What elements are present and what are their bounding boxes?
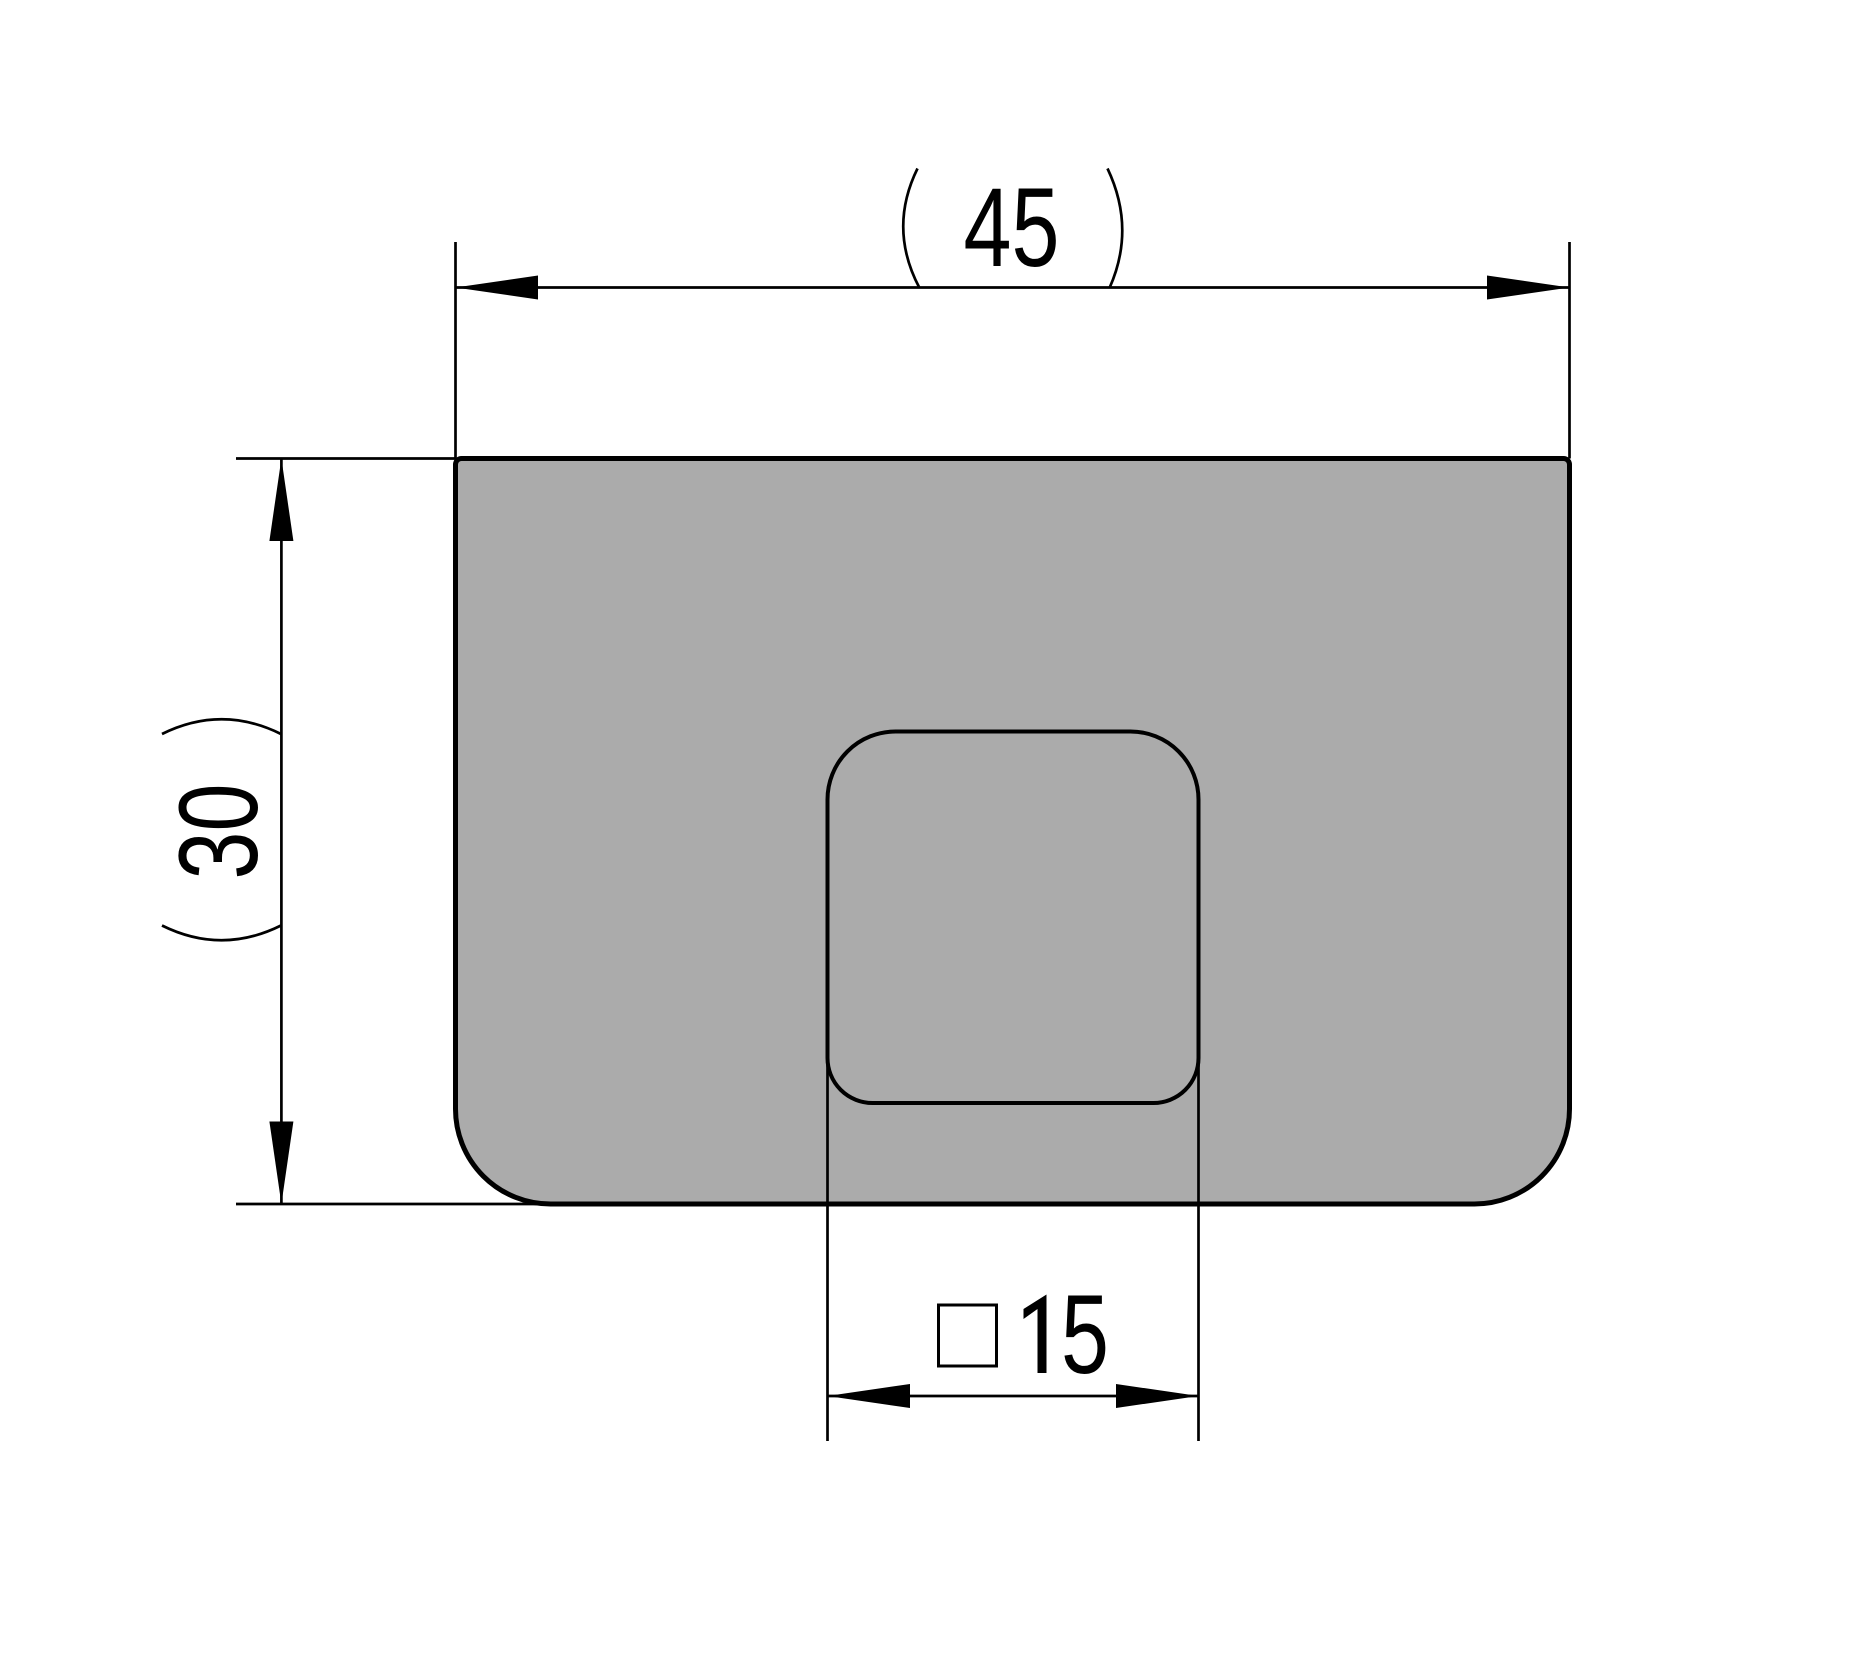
svg-text:45: 45: [964, 166, 1060, 290]
svg-text:5: 5: [1061, 1273, 1109, 1397]
svg-text:30: 30: [157, 784, 281, 880]
